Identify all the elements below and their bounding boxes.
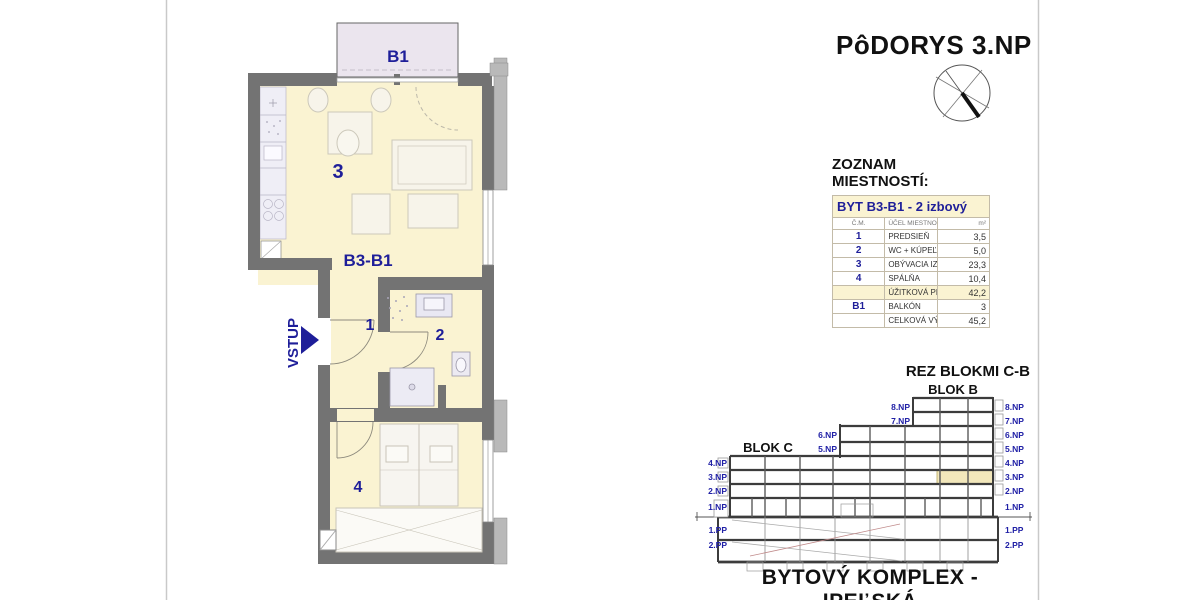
svg-text:3.NP: 3.NP (1005, 472, 1024, 482)
svg-text:1.NP: 1.NP (1005, 502, 1024, 512)
sofa (392, 140, 472, 190)
kitchen-counter (260, 87, 286, 259)
svg-text:7.NP: 7.NP (891, 416, 910, 426)
section-lobby (841, 504, 873, 517)
living-window (483, 190, 493, 265)
bedroom-window (483, 440, 493, 522)
plan-drawing-svg: B1 (0, 0, 1200, 600)
project-title: BYTOVÝ KOMPLEX - IPEĽSKÁ (720, 566, 1020, 600)
table-row: 2 WC + KÚPEĽŇA 5,0 (833, 244, 990, 258)
block-b-label: BLOK B (928, 382, 978, 397)
room-list-panel: ZOZNAM MIESTNOSTÍ: BYT B3-B1 - 2 izbový … (832, 156, 992, 328)
drawing-sheet: B1 (0, 0, 1200, 600)
corner-shaft (320, 530, 336, 550)
bedroom-door-opening (337, 409, 374, 421)
section-floor-labels-mid: 6.NP 5.NP 8.NP 7.NP (818, 402, 910, 454)
balcony-b1: B1 (337, 23, 458, 77)
table-row: 4 SPÁLŇA 10,4 (833, 272, 990, 286)
svg-text:4.NP: 4.NP (708, 458, 727, 468)
svg-text:1.PP: 1.PP (709, 525, 728, 535)
tv-table (408, 194, 458, 228)
armchair (352, 194, 390, 234)
col-area: m² (937, 218, 989, 230)
wardrobe (336, 508, 482, 552)
table-row: B1 BALKÓN 3 (833, 300, 990, 314)
entrance-label: VSTUP (285, 318, 302, 368)
room-number-living: 3 (332, 161, 343, 183)
block-c-label: BLOK C (743, 440, 793, 455)
room-number-bedroom: 4 (354, 479, 363, 496)
svg-text:1.NP: 1.NP (708, 502, 727, 512)
chair-icon (337, 130, 359, 156)
floor-plan: B1 (248, 23, 508, 564)
svg-text:8.NP: 8.NP (1005, 402, 1024, 412)
building-section: BLOK C BLOK B 4.NP 3.NP 2.NP 1.NP 1.PP 2… (695, 382, 1032, 571)
entrance-opening (317, 318, 331, 365)
pillow (430, 446, 452, 462)
apartment-subtitle: BYT B3-B1 - 2 izbový (833, 196, 990, 218)
kitchen-sink-icon (264, 146, 282, 160)
svg-text:8.NP: 8.NP (891, 402, 910, 412)
table-row: 1 PREDSIEŇ 3,5 (833, 230, 990, 244)
section-balconies (714, 400, 1003, 517)
section-highlight-flat (937, 470, 993, 484)
section-columns (752, 398, 981, 517)
svg-text:3.NP: 3.NP (708, 472, 727, 482)
svg-text:1.PP: 1.PP (1005, 525, 1024, 535)
room-number-hall: 1 (366, 317, 375, 334)
svg-text:5.NP: 5.NP (1005, 444, 1024, 454)
table-row: 3 OBÝVACIA IZBA S KUCHYŇOU 23,3 (833, 258, 990, 272)
col-room-number: Č.M. (833, 218, 885, 230)
apartment-label: B3-B1 (343, 251, 392, 270)
section-floor-labels-right: 8.NP 7.NP 6.NP 5.NP 4.NP 3.NP 2.NP 1.NP … (1005, 402, 1024, 550)
washing-machine-icon (390, 368, 434, 406)
svg-text:4.NP: 4.NP (1005, 458, 1024, 468)
entrance-arrow-icon (301, 326, 319, 354)
svg-text:6.NP: 6.NP (1005, 430, 1024, 440)
svg-text:2.NP: 2.NP (708, 486, 727, 496)
svg-text:2.PP: 2.PP (1005, 540, 1024, 550)
svg-text:2.PP: 2.PP (709, 540, 728, 550)
room-number-bathroom: 2 (436, 327, 445, 344)
table-row-usable-area: ÚŽITKOVÁ PLOCHA BYTU 42,2 (833, 286, 990, 300)
svg-text:5.NP: 5.NP (818, 444, 837, 454)
svg-text:2.NP: 2.NP (1005, 486, 1024, 496)
svg-text:6.NP: 6.NP (818, 430, 837, 440)
room-table: BYT B3-B1 - 2 izbový Č.M. ÚČEL MIESTNOST… (832, 195, 990, 328)
shaft-box (261, 241, 281, 259)
col-room-purpose: ÚČEL MIESTNOSTI (885, 218, 937, 230)
chair-icon (308, 88, 328, 112)
pillow (386, 446, 408, 462)
svg-text:7.NP: 7.NP (1005, 416, 1024, 426)
double-bed (380, 424, 458, 506)
balcony-label: B1 (387, 47, 409, 66)
table-header-row: Č.M. ÚČEL MIESTNOSTI m² (833, 218, 990, 230)
compass-icon (934, 65, 990, 121)
toilet-icon (452, 352, 470, 376)
chair-icon (371, 88, 391, 112)
balcony-door-sill (337, 78, 458, 82)
apartment-subtitle-row: BYT B3-B1 - 2 izbový (833, 196, 990, 218)
section-title: REZ BLOKMI C-B (870, 363, 1030, 380)
page-title: PôDORYS 3.NP (836, 30, 1032, 61)
room-list-title: ZOZNAM MIESTNOSTÍ: (832, 156, 992, 190)
table-row-total-area: CELKOVÁ VÝMERA BYTU 45,2 (833, 314, 990, 328)
